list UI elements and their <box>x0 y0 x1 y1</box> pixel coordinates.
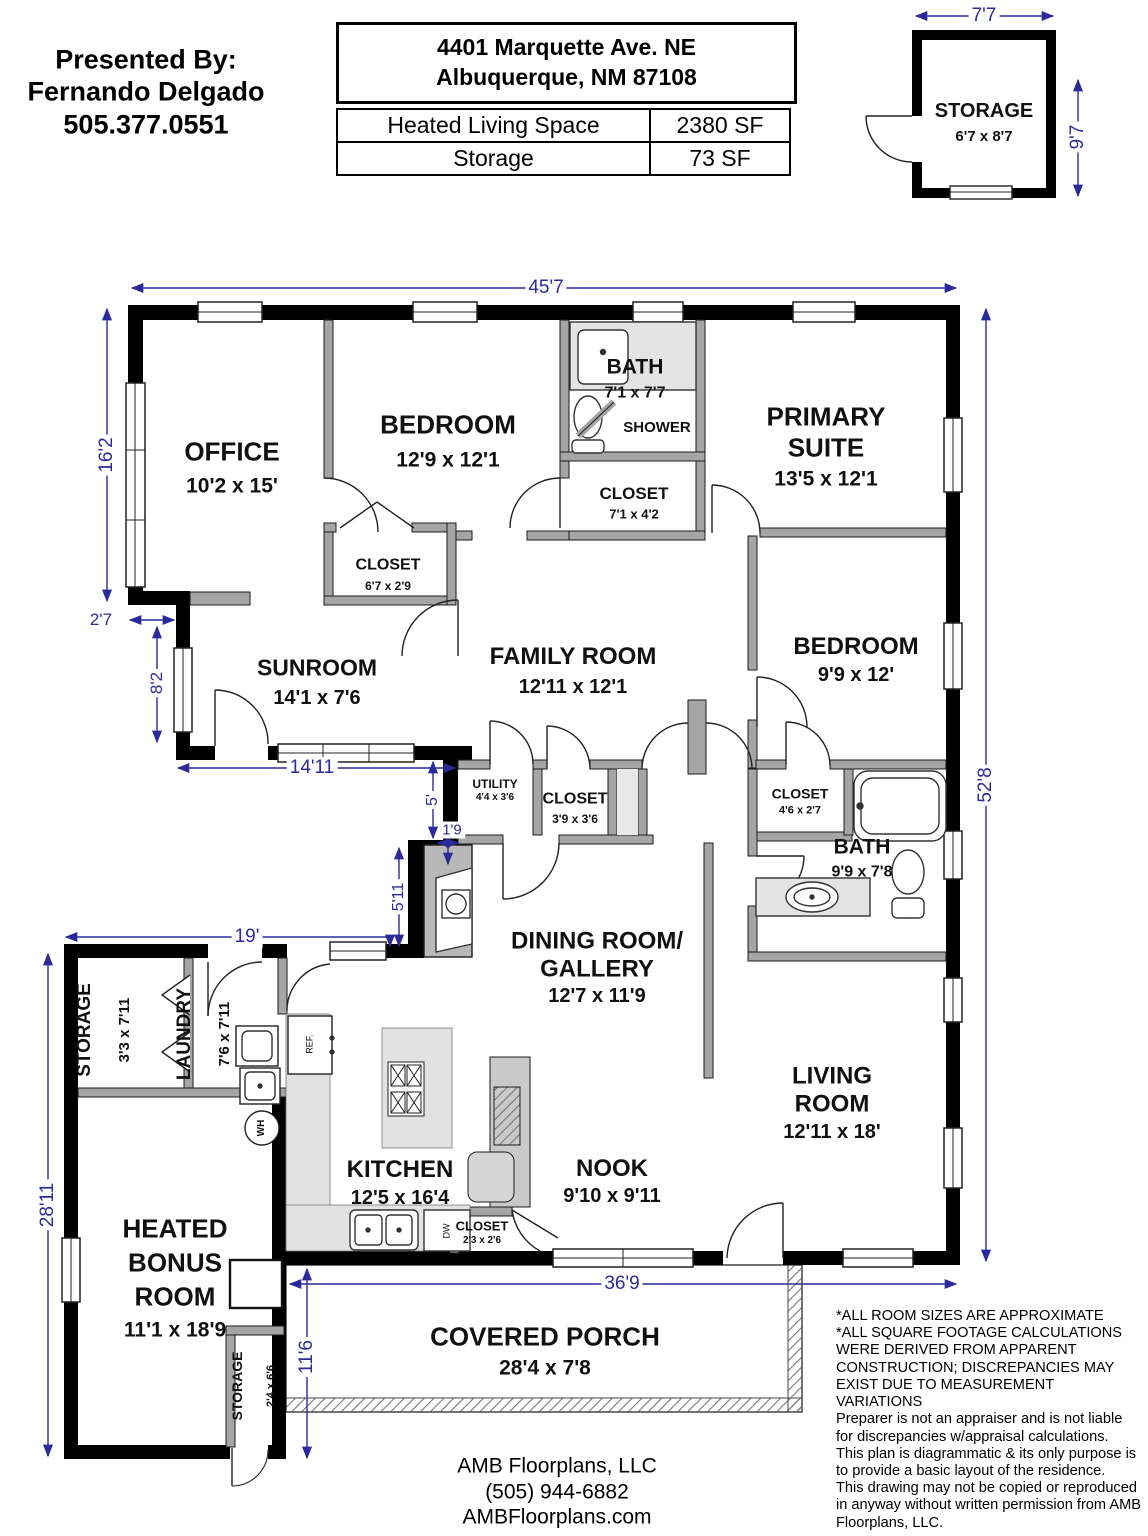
room-label-bath2: BATH <box>834 836 891 861</box>
room-label-kitchen: KITCHEN <box>347 1156 454 1184</box>
dim-overall-height: 52'8 <box>975 764 997 805</box>
room-dims-office: 10'2 x 15' <box>186 475 278 500</box>
room-label-closet-bedroom1: CLOSET <box>356 557 421 576</box>
storage2-dims: 2'4 x 6'6 <box>265 1352 278 1421</box>
dim-wing-height: 28'11 <box>37 1180 59 1231</box>
dim-bottom-width: 36'9 <box>601 1273 642 1295</box>
room-label-closet-hall: CLOSET <box>543 791 608 810</box>
dim-left-jog: 2'7 <box>87 610 115 630</box>
room-dims-sunroom: 14'1 x 7'6 <box>273 687 360 711</box>
room-dims-living-room: 12'11 x 18' <box>783 1121 880 1145</box>
storage1-name: STORAGE <box>74 983 97 1077</box>
preparer-footer: AMB Floorplans, LLC (505) 944-6882 AMBFl… <box>457 1454 657 1531</box>
dim-sunroom-width: 14'11 <box>287 757 338 779</box>
room-label-dining-gallery: DINING ROOM/ GALLERY <box>511 928 683 985</box>
water-heater-label: WH <box>256 1120 268 1137</box>
dim-mid-jog-width: 1'9 <box>439 822 465 839</box>
room-label-storage2: STORAGE 2'4 x 6'6 <box>210 1352 298 1421</box>
room-dims-bedroom2: 9'9 x 12' <box>818 664 894 688</box>
room-dims-bedroom1: 12'9 x 12'1 <box>396 449 499 474</box>
room-dims-closet-bedroom2: 4'6 x 2'7 <box>779 805 821 818</box>
room-label-office: OFFICE <box>184 437 279 468</box>
disclaimer-notes: *ALL ROOM SIZES ARE APPROXIMATE *ALL SQU… <box>836 1308 1142 1532</box>
room-label-storage1: STORAGE 3'3 x 7'11 <box>55 983 153 1077</box>
room-label-closet-primary: CLOSET <box>600 484 669 504</box>
room-label-utility: UTILITY <box>472 777 517 791</box>
room-label-covered-porch: COVERED PORCH <box>430 1322 660 1353</box>
dim-porch-side: 11'6 <box>296 1337 318 1377</box>
room-dims-covered-porch: 28'4 x 7'8 <box>499 1357 591 1382</box>
room-dims-closet-primary: 7'1 x 4'2 <box>609 506 659 521</box>
storage1-dims: 3'3 x 7'11 <box>116 983 134 1077</box>
refrigerator-label: REF. <box>305 1034 316 1054</box>
room-label-primary-suite: PRIMARY SUITE <box>767 401 886 462</box>
room-dims-primary-suite: 13'5 x 12'1 <box>774 468 877 493</box>
room-dims-closet-hall: 3'9 x 3'6 <box>552 812 598 826</box>
dim-outbuilding-height: 9'7 <box>1067 122 1089 153</box>
outbuilding-door <box>866 116 912 162</box>
room-label-closet-nook: CLOSET <box>456 1218 509 1233</box>
room-dims-dining-gallery: 12'7 x 11'9 <box>548 985 645 1009</box>
room-label-closet-bedroom2: CLOSET <box>772 786 829 803</box>
room-label-bedroom1: BEDROOM <box>380 410 516 441</box>
dim-overall-width: 45'7 <box>525 277 566 299</box>
outbuilding-label: STORAGE <box>935 100 1034 124</box>
dim-wing-width: 19' <box>232 926 263 948</box>
room-dims-bath1: 7'1 x 7'7 <box>605 385 666 404</box>
room-label-bath1: BATH <box>607 356 664 381</box>
room-dims-utility: 4'4 x 3'6 <box>476 792 514 804</box>
room-dims-closet-nook: 2'3 x 2'6 <box>463 1235 501 1247</box>
floorplan-page: Presented By: Fernando Delgado 505.377.0… <box>0 0 1148 1536</box>
room-label-living-room: LIVING ROOM <box>792 1063 872 1120</box>
dim-outbuilding-width: 7'7 <box>969 5 1000 27</box>
room-dims-kitchen: 12'5 x 16'4 <box>351 1187 450 1211</box>
room-label-bonus-room: HEATED BONUS ROOM <box>123 1212 228 1313</box>
room-dims-bonus-room: 11'1 x 18'9 <box>124 1319 226 1344</box>
room-label-laundry: LAUNDRY 7'6 x 7'11 <box>155 988 253 1080</box>
dim-mid-wall: 5'11 <box>390 880 408 915</box>
laundry-name: LAUNDRY <box>174 988 197 1080</box>
room-label-shower: SHOWER <box>623 419 691 437</box>
room-label-nook: NOOK <box>576 1155 648 1183</box>
dim-sunroom-height: 8'2 <box>147 669 167 697</box>
room-label-sunroom: SUNROOM <box>257 654 377 681</box>
dim-office-height: 16'2 <box>96 434 118 475</box>
room-dims-family-room: 12'11 x 12'1 <box>519 676 628 700</box>
room-dims-closet-bedroom1: 6'7 x 2'9 <box>365 579 411 593</box>
dim-mid-jog-height: 5' <box>424 791 442 809</box>
storage2-name: STORAGE <box>229 1352 246 1421</box>
room-label-bedroom2: BEDROOM <box>793 633 918 661</box>
laundry-dims: 7'6 x 7'11 <box>216 988 234 1080</box>
dishwasher-label: DW <box>442 1224 453 1239</box>
room-dims-bath2: 9'9 x 7'8 <box>832 864 893 883</box>
outbuilding-dims: 6'7 x 8'7 <box>955 128 1012 146</box>
room-label-family-room: FAMILY ROOM <box>490 643 657 671</box>
room-dims-nook: 9'10 x 9'11 <box>563 1185 660 1209</box>
